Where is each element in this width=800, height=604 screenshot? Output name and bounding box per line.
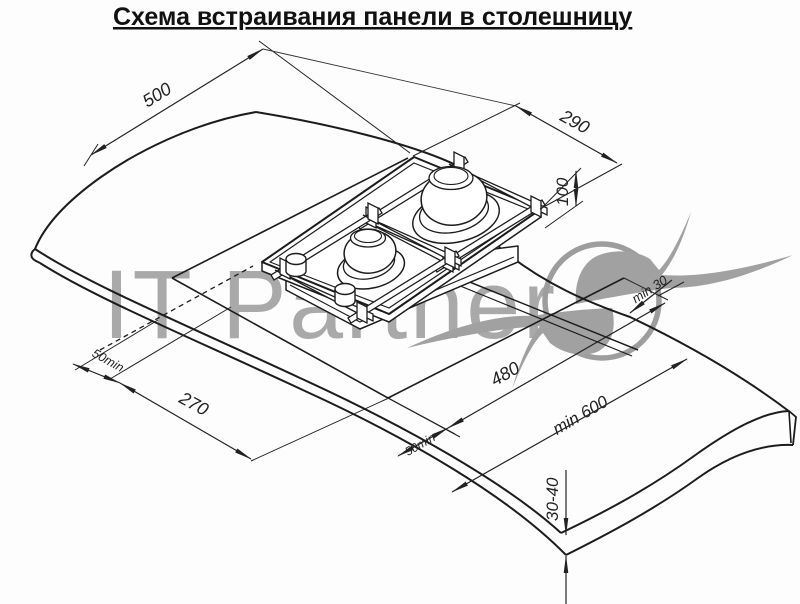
svg-text:100: 100 [553, 177, 572, 206]
svg-text:270: 270 [175, 387, 212, 420]
svg-text:50min: 50min [402, 430, 438, 459]
svg-text:480: 480 [487, 358, 523, 390]
svg-text:Схема встраивания панели в сто: Схема встраивания панели в столешницу [113, 3, 632, 31]
svg-text:290: 290 [556, 105, 593, 138]
svg-text:min 600: min 600 [549, 392, 611, 439]
svg-text:30-40: 30-40 [543, 477, 562, 521]
